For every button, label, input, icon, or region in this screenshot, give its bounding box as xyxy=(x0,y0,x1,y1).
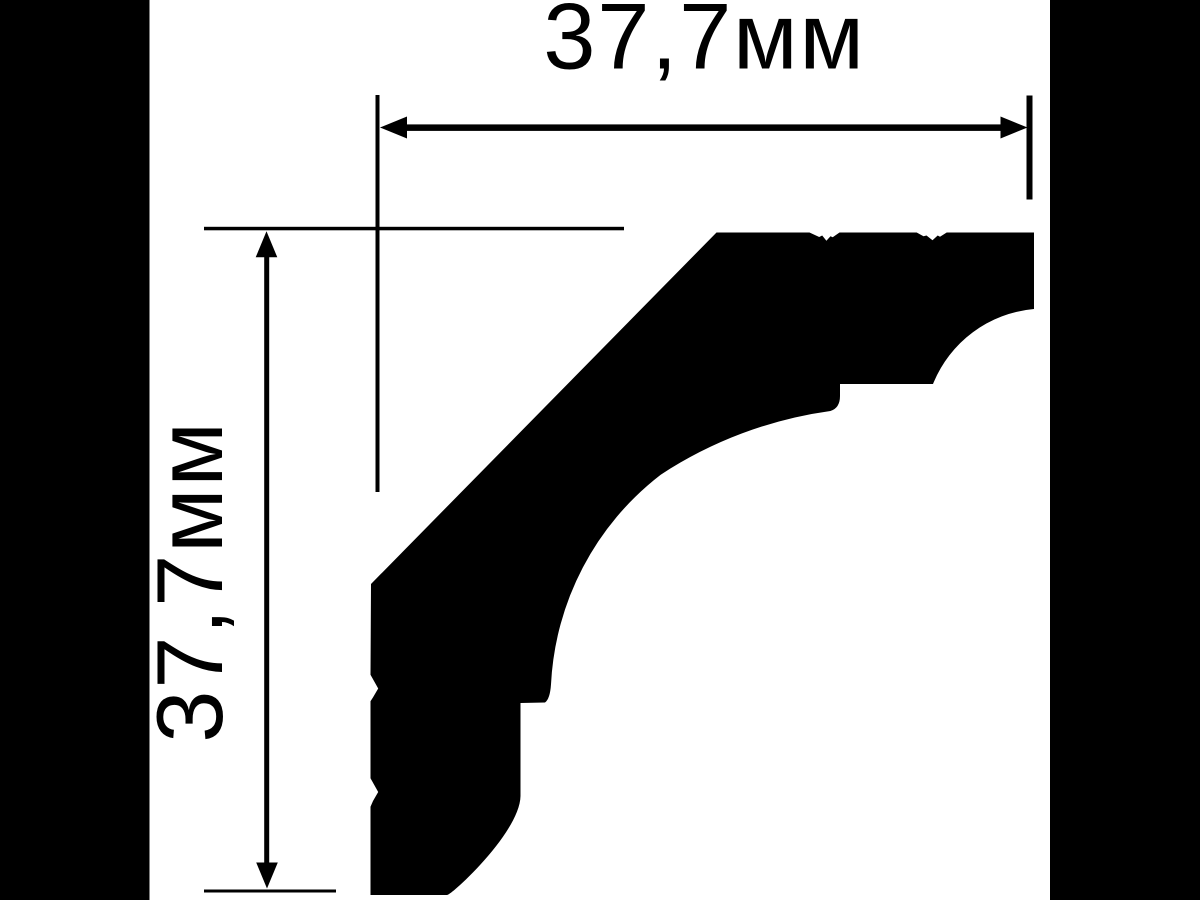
svg-text:37,7мм: 37,7мм xyxy=(543,0,865,88)
svg-text:37,7мм: 37,7мм xyxy=(137,420,242,742)
